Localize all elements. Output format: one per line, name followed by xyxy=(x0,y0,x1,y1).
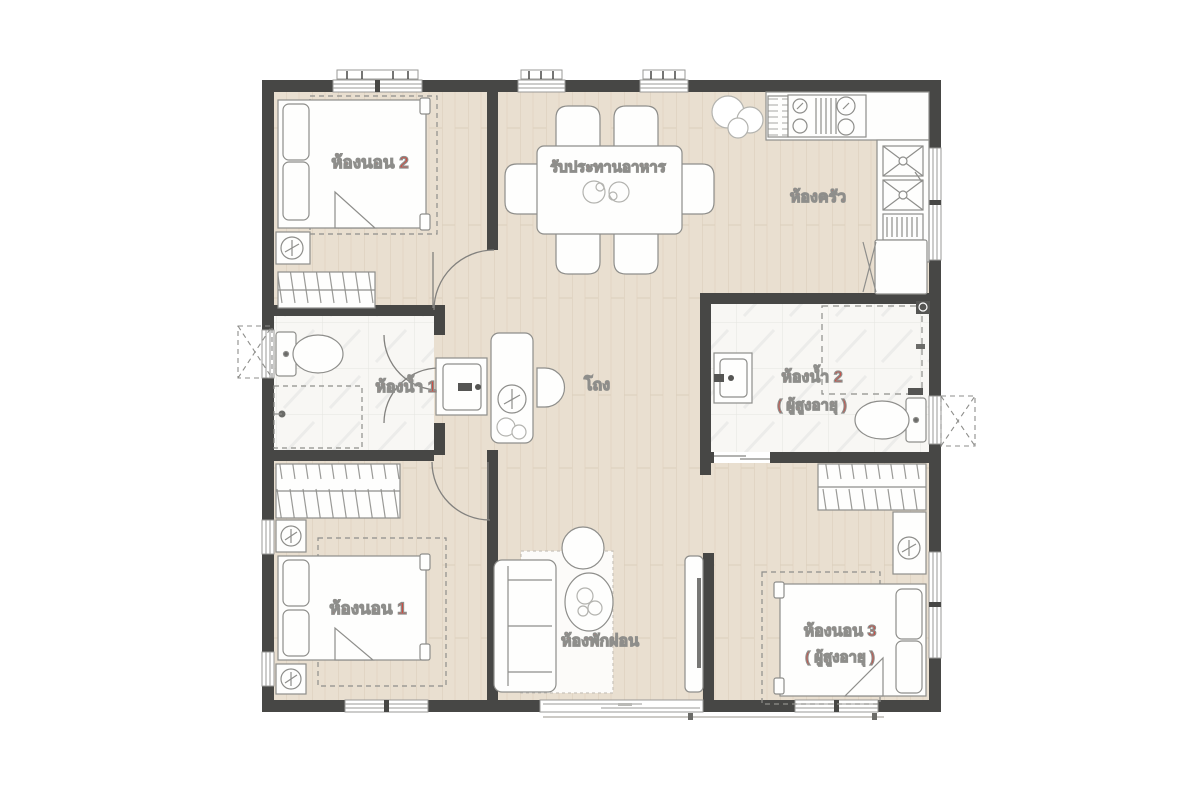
stove-icon xyxy=(788,95,866,137)
wardrobe-closet xyxy=(276,464,400,518)
wall-living-bedroom3 xyxy=(703,553,714,712)
tv-screen xyxy=(697,578,701,668)
wall-bath1-bedroom1 xyxy=(262,450,434,461)
pillow xyxy=(896,641,922,693)
dining-label: รับประทานอาหาร xyxy=(550,159,667,176)
bedside-table xyxy=(276,664,306,694)
pillow xyxy=(283,104,309,160)
window-dining-top-1 xyxy=(518,70,565,92)
round-chair xyxy=(562,527,604,569)
wardrobe-closet xyxy=(278,272,375,308)
bathroom-2-sublabel: ( ผู้สูงอายุ ) xyxy=(777,397,847,415)
bedroom-3-label: ห้องนอน 3 xyxy=(804,622,877,640)
toilet-icon xyxy=(276,332,343,376)
pillow xyxy=(283,560,309,606)
pillow xyxy=(283,610,309,656)
sliding-door-living-bottom xyxy=(540,700,703,712)
coffee-table xyxy=(565,573,613,631)
window-bedroom3-bottom xyxy=(795,700,878,712)
wall-kitchen-bath2 xyxy=(700,293,941,304)
hall-label: โถง xyxy=(583,374,610,394)
kitchen-label: ห้องครัว xyxy=(790,188,846,206)
bedroom-2-label: ห้องนอน 2 xyxy=(331,153,408,172)
bath2-washbasin xyxy=(714,353,752,403)
tv-console xyxy=(685,556,703,692)
bedroom-1-label: ห้องนอน 1 xyxy=(329,599,406,618)
sink-drainer xyxy=(883,214,923,240)
bath2-exterior-unit xyxy=(941,396,975,446)
hall-vanity-counter xyxy=(491,333,533,443)
bedside-table xyxy=(893,512,926,574)
window-kitchen-right xyxy=(929,148,941,260)
floor-plan-page: ห้องนอน 2 รับประทานอาหาร xyxy=(0,0,1200,800)
wall-bath2-west xyxy=(700,293,711,475)
window-bedroom3-right xyxy=(929,552,941,658)
window-bedroom1-bottom xyxy=(345,700,428,712)
bath1-vanity-sink xyxy=(436,358,487,415)
bedside-table xyxy=(276,520,306,552)
living-label: ห้องพักผ่อน xyxy=(561,632,639,650)
bath2-sliding-door xyxy=(714,452,770,463)
window-bedroom2-top xyxy=(333,70,422,92)
window-dining-top-2 xyxy=(640,70,688,92)
sofa xyxy=(494,560,556,692)
pillow xyxy=(283,162,309,220)
wardrobe-closet xyxy=(818,464,926,510)
bedside-table xyxy=(276,232,310,264)
window-bedroom1-left-1 xyxy=(262,520,274,554)
bedroom-3-sublabel: ( ผู้สูงอายุ ) xyxy=(805,649,875,667)
window-bedroom1-left-2 xyxy=(262,652,274,686)
counter-hatch xyxy=(768,96,788,137)
terrace-edge-line xyxy=(543,713,884,720)
floor-plan-canvas: ห้องนอน 2 รับประทานอาหาร xyxy=(0,0,1200,800)
window-bath2-right xyxy=(929,396,941,444)
vent-fan-icon xyxy=(916,301,930,314)
pillow xyxy=(896,589,922,639)
wall-bedroom2-dining xyxy=(487,80,498,250)
grab-bar xyxy=(908,388,923,395)
